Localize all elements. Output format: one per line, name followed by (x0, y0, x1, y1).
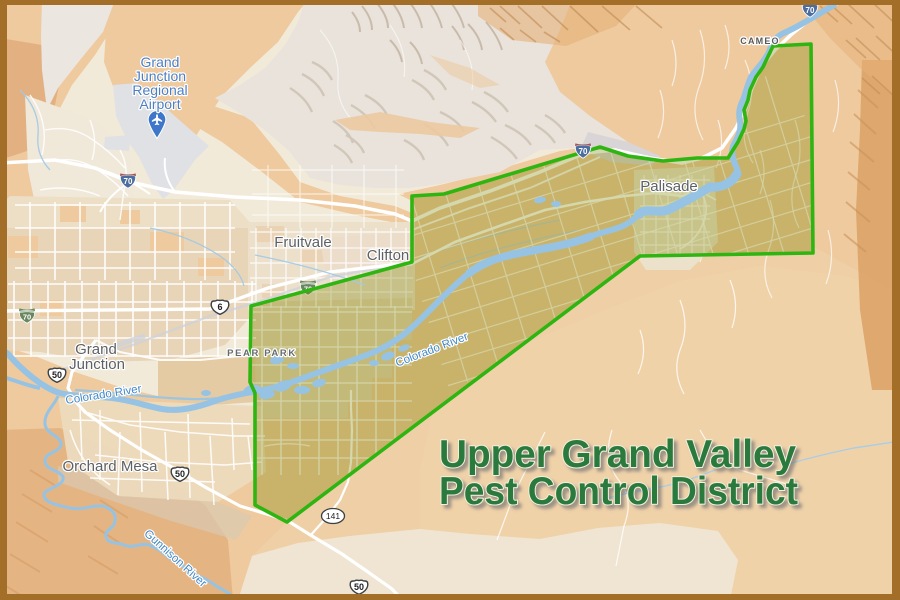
svg-text:141: 141 (326, 511, 340, 521)
svg-text:Palisade: Palisade (640, 178, 698, 195)
svg-text:70: 70 (579, 147, 588, 156)
svg-text:70: 70 (124, 177, 133, 186)
svg-text:6: 6 (217, 302, 222, 312)
svg-text:70: 70 (806, 6, 815, 15)
svg-text:70: 70 (23, 313, 31, 322)
svg-text:Orchard Mesa: Orchard Mesa (62, 458, 158, 475)
svg-text:Clifton: Clifton (367, 247, 410, 264)
svg-text:Junction: Junction (69, 356, 125, 373)
svg-text:50: 50 (52, 370, 62, 380)
svg-text:Airport: Airport (139, 96, 180, 112)
svg-text:50: 50 (354, 582, 364, 592)
svg-text:CAMEO: CAMEO (740, 36, 780, 46)
svg-text:50: 50 (175, 469, 185, 479)
svg-text:PEAR PARK: PEAR PARK (227, 348, 297, 359)
svg-text:Fruitvale: Fruitvale (274, 234, 332, 251)
svg-text:Pest Control District: Pest Control District (439, 470, 798, 513)
